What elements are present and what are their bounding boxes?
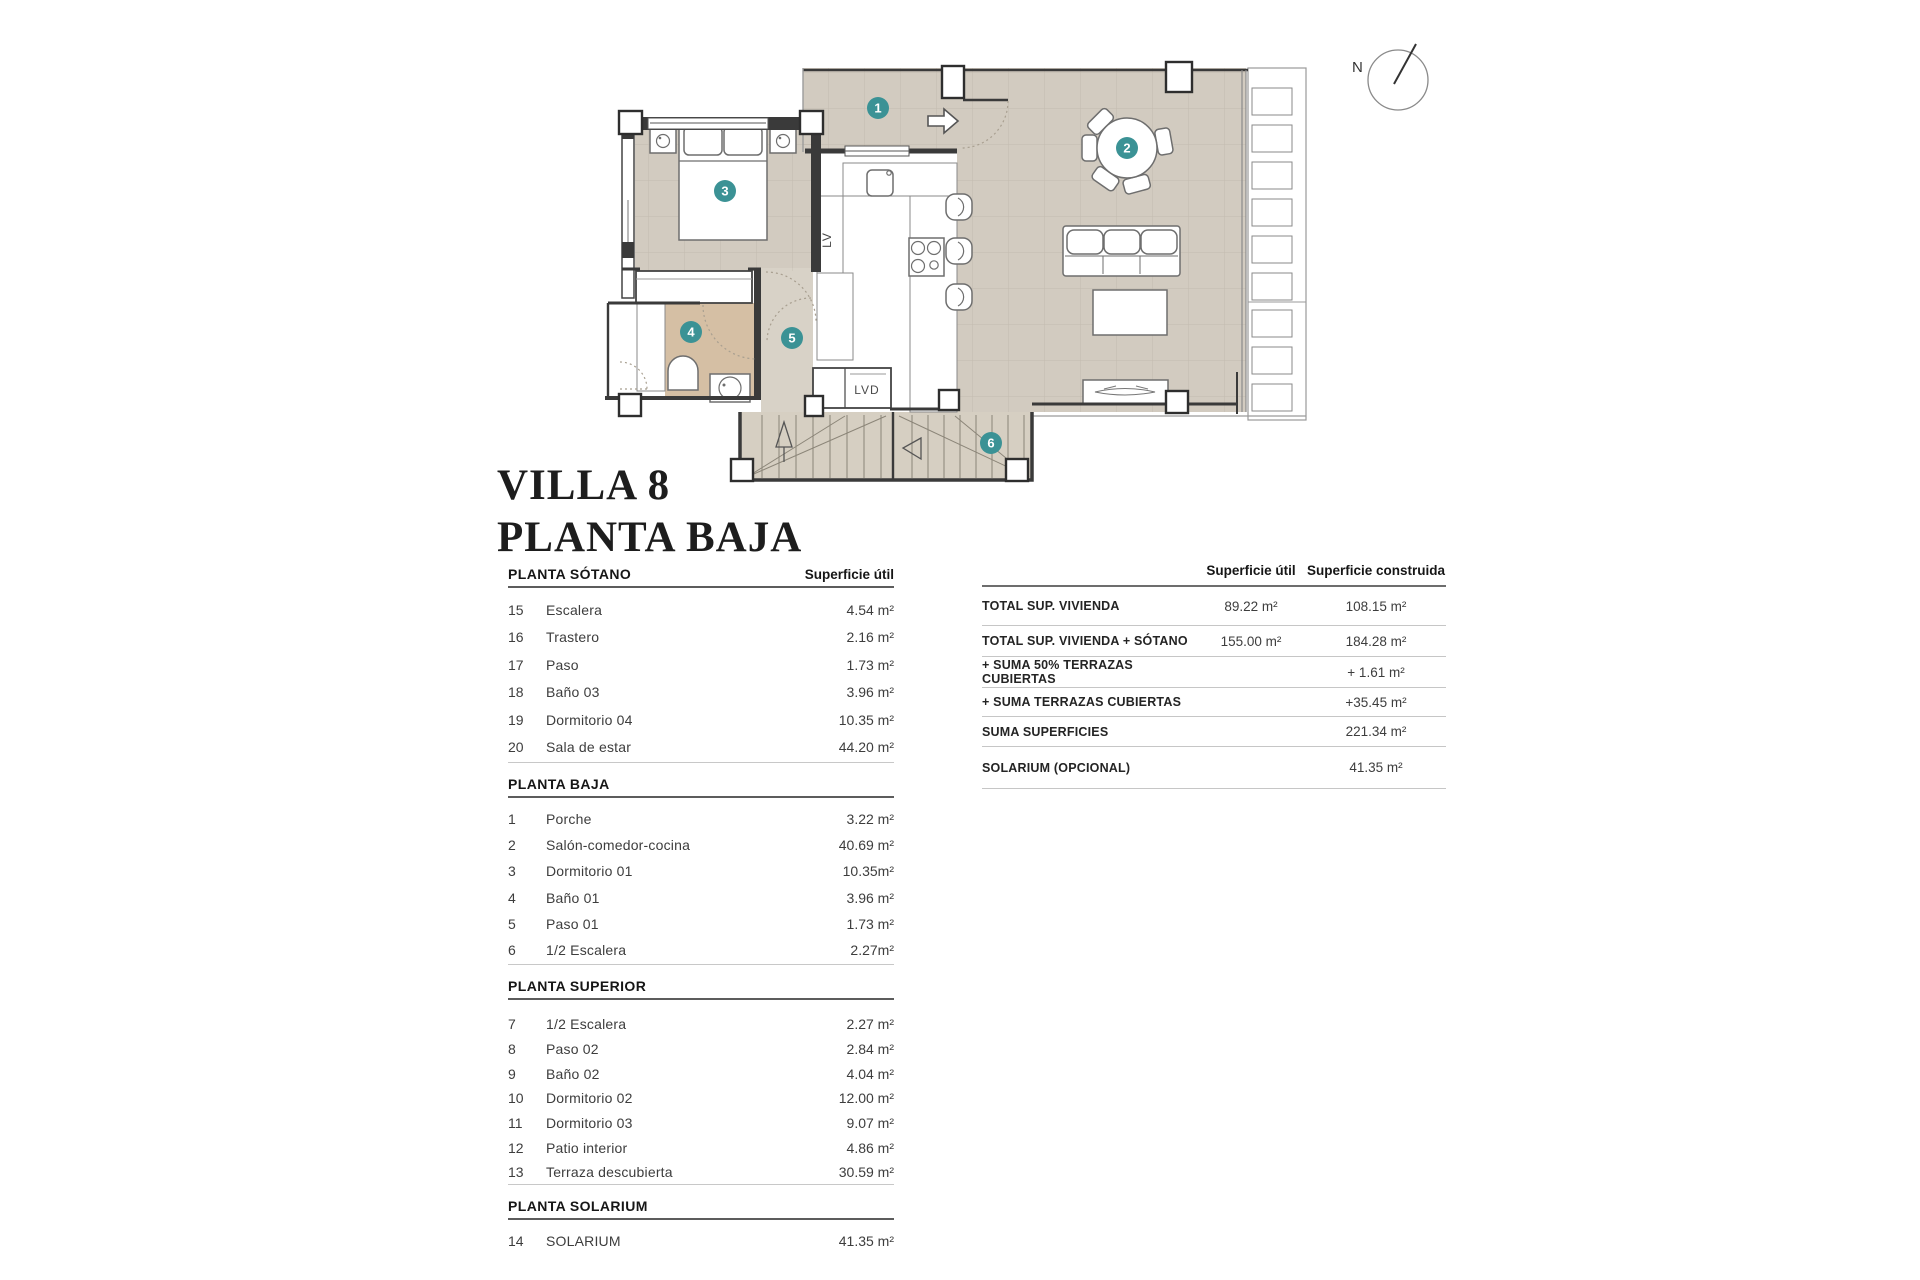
table-row: 12Patio interior4.86 m² <box>508 1135 894 1160</box>
table-row: 1Porche3.22 m² <box>508 806 894 832</box>
title-line2: PLANTA BAJA <box>497 512 802 564</box>
table-row: 20Sala de estar44.20 m² <box>508 734 894 762</box>
lv-label: LV <box>820 232 834 248</box>
table-row: 2Salón-comedor-cocina40.69 m² <box>508 832 894 858</box>
table-row: 8Paso 022.84 m² <box>508 1037 894 1062</box>
section-header: PLANTA SÓTANO <box>508 566 631 582</box>
table-planta-sotano: PLANTA SÓTANO Superficie útil 15Escalera… <box>508 560 894 761</box>
table-row: 61/2 Escalera2.27m² <box>508 937 894 963</box>
table-row: 17Paso1.73 m² <box>508 651 894 679</box>
north-label: N <box>1352 59 1363 76</box>
pergola-louvers <box>1248 68 1306 420</box>
table-row: 18Baño 033.96 m² <box>508 679 894 707</box>
table-row: 9Baño 024.04 m² <box>508 1061 894 1086</box>
summary-header-row: Superficie útil Superficie construida <box>982 556 1446 587</box>
laundry-closet: LVD <box>813 368 891 408</box>
divider <box>508 586 894 588</box>
tv-bench <box>1083 380 1168 404</box>
summary-row: TOTAL SUP. VIVIENDA 89.22 m² 108.15 m² <box>982 587 1446 626</box>
table-row: 10Dormitorio 0212.00 m² <box>508 1086 894 1111</box>
svg-text:4: 4 <box>687 325 695 340</box>
section-header: PLANTA BAJA <box>508 776 610 792</box>
table-row: 14SOLARIUM41.35 m² <box>508 1228 894 1254</box>
table-row: 5Paso 011.73 m² <box>508 911 894 937</box>
table-planta-superior: PLANTA SUPERIOR 71/2 Escalera2.27 m² 8Pa… <box>508 964 894 1185</box>
section-header: PLANTA SOLARIUM <box>508 1198 648 1214</box>
wardrobe <box>636 271 752 303</box>
summary-row: + SUMA TERRAZAS CUBIERTAS +35.45 m² <box>982 688 1446 717</box>
table-row: 4Baño 013.96 m² <box>508 885 894 911</box>
floor-plan-drawing: LVD LV <box>560 10 1500 520</box>
floor-plan: LVD LV <box>560 10 1500 520</box>
column-header-superficie-construida: Superficie construida <box>1306 563 1446 578</box>
divider <box>508 1218 894 1220</box>
table-row: 16Trastero2.16 m² <box>508 624 894 652</box>
table-row: 13Terraza descubierta30.59 m² <box>508 1160 894 1185</box>
table-row: 11Dormitorio 039.07 m² <box>508 1111 894 1136</box>
shower-area <box>637 303 665 391</box>
svg-text:2: 2 <box>1123 141 1130 156</box>
divider <box>508 796 894 798</box>
svg-text:1: 1 <box>874 101 881 116</box>
section-header: PLANTA SUPERIOR <box>508 978 646 994</box>
table-row: 15Escalera4.54 m² <box>508 596 894 624</box>
north-compass-icon: N <box>1352 44 1428 110</box>
kitchen-counter <box>843 163 957 196</box>
summary-table: Superficie útil Superficie construida TO… <box>982 556 1446 789</box>
column-header-superficie-util: Superficie útil <box>805 567 894 582</box>
summary-row: SUMA SUPERFICIES 221.34 m² <box>982 717 1446 747</box>
svg-text:5: 5 <box>788 331 795 346</box>
summary-row: + SUMA 50% TERRAZAS CUBIERTAS + 1.61 m² <box>982 657 1446 688</box>
page-title: VILLA 8 PLANTA BAJA <box>497 460 802 563</box>
table-planta-baja: PLANTA BAJA 1Porche3.22 m² 2Salón-comedo… <box>508 762 894 963</box>
sink <box>867 170 893 196</box>
column-header-superficie-util: Superficie útil <box>1196 563 1306 578</box>
svg-text:3: 3 <box>721 184 728 199</box>
svg-text:6: 6 <box>987 436 994 451</box>
table-planta-solarium: PLANTA SOLARIUM 14SOLARIUM41.35 m² <box>508 1184 894 1254</box>
lvd-label: LVD <box>854 383 879 397</box>
coffee-table <box>1093 290 1167 335</box>
kitchen-cabinet <box>817 273 853 360</box>
summary-row: TOTAL SUP. VIVIENDA + SÓTANO 155.00 m² 1… <box>982 626 1446 657</box>
sofa <box>1063 226 1180 276</box>
divider <box>508 998 894 1000</box>
summary-row: SOLARIUM (OPCIONAL) 41.35 m² <box>982 747 1446 789</box>
title-line1: VILLA 8 <box>497 460 802 512</box>
table-row: 71/2 Escalera2.27 m² <box>508 1012 894 1037</box>
table-row: 19Dormitorio 0410.35 m² <box>508 706 894 734</box>
table-row: 3Dormitorio 0110.35m² <box>508 858 894 884</box>
shower-niche <box>668 356 698 390</box>
